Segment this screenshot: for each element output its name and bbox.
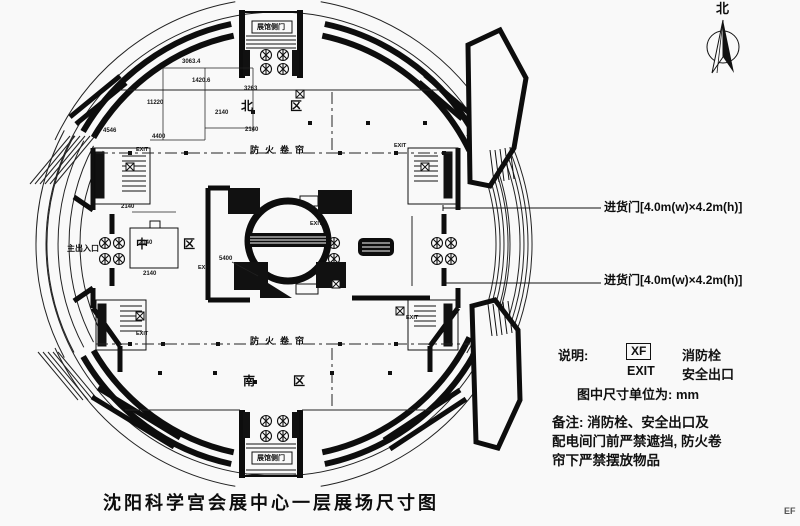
drawing-sheet: 沈阳科学宫会展中心一层展场尺寸图 北 进货门[4.0m(w)×4.2m(h)] … xyxy=(0,0,800,526)
exit-label: EXIT xyxy=(310,222,322,228)
fire-shutter-label-north: 防火卷帘 xyxy=(250,146,310,155)
exit-label: EXIT xyxy=(136,332,148,338)
dim-label: 2140 xyxy=(139,240,152,246)
exit-label: EXIT xyxy=(198,266,210,272)
central-core xyxy=(208,188,430,300)
legend-units: 图中尺寸单位为: mm xyxy=(577,384,699,403)
hall-walls xyxy=(74,90,458,410)
legend-hydrant-symbol: XF xyxy=(626,343,651,360)
area-label-south: 南区 xyxy=(243,375,343,387)
notes-line3: 帘下严禁摆放物品 xyxy=(552,451,800,470)
loading-wings xyxy=(468,30,526,448)
loading-door-callout-bottom: 进货门[4.0m(w)×4.2m(h)] xyxy=(604,274,742,286)
dim-label: 2140 xyxy=(245,127,258,133)
corner-watermark: EF xyxy=(784,506,796,516)
legend-hydrant-label: 消防栓 xyxy=(682,345,721,364)
exit-label: EXIT xyxy=(136,148,148,154)
dim-label: 1420.6 xyxy=(192,78,210,84)
side-door-label-bottom: 展馆侧门 xyxy=(257,455,285,462)
north-compass-icon xyxy=(707,20,739,73)
dim-label: 3063.4 xyxy=(182,59,200,65)
exit-label: EXIT xyxy=(394,144,406,150)
south-side-door-vestibule xyxy=(242,410,300,478)
notes-block: 备注: 消防栓、安全出口及 配电间门前严禁遮挡, 防火卷 帘下严禁摆放物品 xyxy=(552,413,800,470)
side-door-label-top: 展馆侧门 xyxy=(257,24,285,31)
area-label-north: 北区 xyxy=(241,100,339,112)
legend-exit-symbol: EXIT xyxy=(627,364,655,378)
main-entrance-label: 主出入口 xyxy=(67,245,99,253)
legend-units-label: 图中尺寸单位为: xyxy=(577,387,672,402)
dim-label: 2140 xyxy=(143,271,156,277)
dim-label: 2140 xyxy=(215,110,228,116)
dim-label: 5400 xyxy=(219,256,232,262)
fire-shutter-label-south: 防火卷帘 xyxy=(250,337,310,346)
notes-line1: 备注: 消防栓、安全出口及 xyxy=(552,413,800,432)
legend-units-value: mm xyxy=(676,387,699,402)
drawing-title: 沈阳科学宫会展中心一层展场尺寸图 xyxy=(103,494,439,512)
loading-door-callout-top: 进货门[4.0m(w)×4.2m(h)] xyxy=(604,201,742,213)
dim-label: 3263 xyxy=(244,86,257,92)
exit-label: EXIT xyxy=(406,316,418,322)
legend-exit-label: 安全出口 xyxy=(682,364,734,383)
legend-heading: 说明: xyxy=(558,345,588,364)
dim-label: 11220 xyxy=(147,100,163,106)
compass-north-label: 北 xyxy=(716,2,729,15)
dim-label: 4400 xyxy=(152,134,165,140)
dim-label: 2140 xyxy=(121,204,134,210)
dim-label: 4546 xyxy=(103,128,116,134)
notes-line2: 配电间门前严禁遮挡, 防火卷 xyxy=(552,432,800,451)
